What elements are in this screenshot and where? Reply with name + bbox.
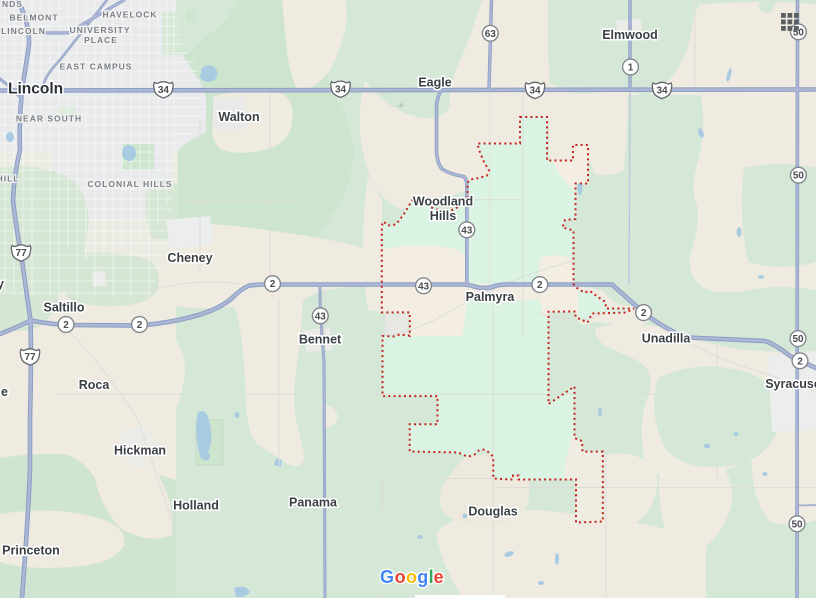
svg-text:50: 50 <box>791 519 803 530</box>
svg-text:2: 2 <box>797 356 803 367</box>
svg-text:43: 43 <box>461 225 473 236</box>
svg-text:Princeton: Princeton <box>2 544 60 558</box>
svg-text:Bennet: Bennet <box>299 333 342 347</box>
svg-text:COLONIAL HILLS: COLONIAL HILLS <box>87 179 172 189</box>
svg-text:G: G <box>380 567 394 587</box>
svg-text:e: e <box>434 567 444 587</box>
svg-text:2: 2 <box>641 308 647 319</box>
svg-text:LINCOLN: LINCOLN <box>1 26 46 36</box>
svg-text:Douglas: Douglas <box>468 505 517 519</box>
svg-text:Unadilla: Unadilla <box>642 332 692 346</box>
svg-text:50: 50 <box>792 334 804 345</box>
svg-text:Walton: Walton <box>218 110 259 124</box>
svg-text:Roca: Roca <box>79 378 111 392</box>
svg-text:77: 77 <box>16 248 28 259</box>
svg-text:2: 2 <box>137 320 143 331</box>
svg-text:Cheney: Cheney <box>167 251 212 265</box>
svg-text:y: y <box>0 277 4 291</box>
svg-text:1: 1 <box>628 63 634 74</box>
svg-text:BELMONT: BELMONT <box>9 13 58 23</box>
svg-text:NEAR SOUTH: NEAR SOUTH <box>16 114 82 124</box>
svg-text:e: e <box>1 385 8 399</box>
svg-text:HAVELOCK: HAVELOCK <box>102 10 157 20</box>
svg-text:EAST CAMPUS: EAST CAMPUS <box>60 62 133 72</box>
svg-text:43: 43 <box>315 311 327 322</box>
svg-text:g: g <box>417 567 428 587</box>
svg-text:2: 2 <box>63 320 69 331</box>
svg-text:Holland: Holland <box>173 499 219 513</box>
svg-text:43: 43 <box>418 281 430 292</box>
svg-text:77: 77 <box>24 352 36 363</box>
svg-text:34: 34 <box>335 84 347 95</box>
svg-text:UNIVERSITY: UNIVERSITY <box>69 25 130 35</box>
svg-text:NDS: NDS <box>2 0 23 9</box>
svg-text:Lincoln: Lincoln <box>8 81 63 98</box>
svg-text:Elmwood: Elmwood <box>602 28 658 42</box>
svg-text:Panama: Panama <box>289 496 338 510</box>
svg-text:Syracuse: Syracuse <box>765 377 816 391</box>
svg-text:Palmyra: Palmyra <box>466 290 516 304</box>
svg-text:HILL: HILL <box>0 174 19 184</box>
svg-text:Hickman: Hickman <box>114 444 166 458</box>
svg-text:34: 34 <box>529 86 541 97</box>
svg-text:o: o <box>395 567 406 587</box>
svg-text:2: 2 <box>270 279 276 290</box>
svg-text:2: 2 <box>537 280 543 291</box>
svg-text:34: 34 <box>158 85 170 96</box>
svg-text:Eagle: Eagle <box>418 76 451 90</box>
svg-text:PLACE: PLACE <box>84 35 118 45</box>
svg-text:50: 50 <box>793 171 805 182</box>
svg-text:Saltillo: Saltillo <box>44 301 85 315</box>
svg-text:Hills: Hills <box>430 209 456 223</box>
svg-text:Woodland: Woodland <box>413 195 473 209</box>
svg-text:63: 63 <box>485 29 497 40</box>
svg-text:34: 34 <box>656 86 668 97</box>
svg-text:o: o <box>406 567 417 587</box>
